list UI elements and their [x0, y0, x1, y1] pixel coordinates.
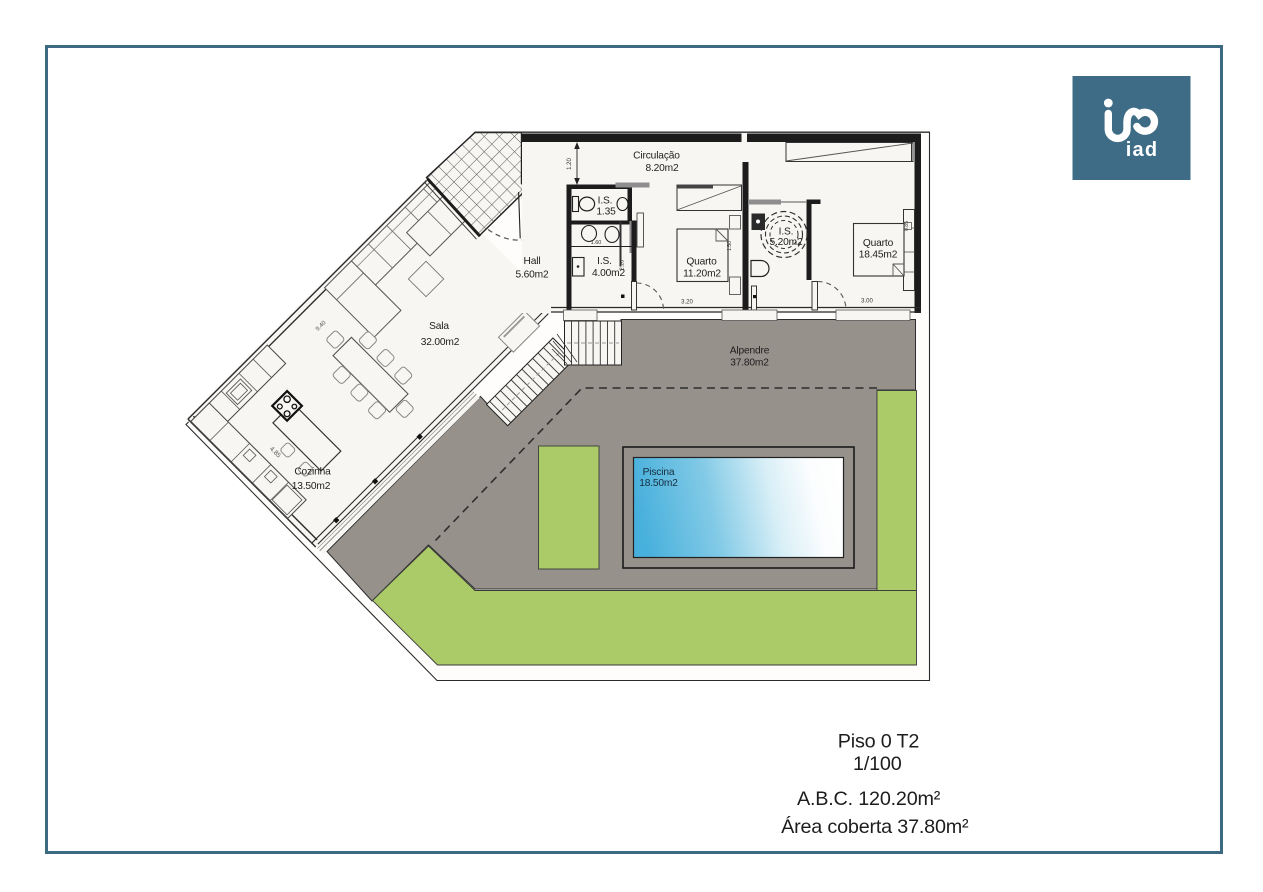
svg-text:Circulação: Circulação [633, 151, 680, 162]
svg-text:Sala: Sala [429, 321, 449, 332]
svg-text:Alpendre: Alpendre [730, 346, 770, 357]
svg-text:5.20m2: 5.20m2 [769, 237, 803, 248]
svg-text:Quarto: Quarto [863, 238, 894, 249]
svg-text:1.50: 1.50 [727, 241, 733, 251]
svg-text:4.00m2: 4.00m2 [592, 268, 626, 279]
svg-text:I.S.: I.S. [597, 256, 612, 267]
svg-text:5.60m2: 5.60m2 [515, 270, 549, 281]
svg-text:13.50m2: 13.50m2 [292, 481, 331, 492]
svg-text:18.50m2: 18.50m2 [639, 478, 678, 489]
svg-text:1/100: 1/100 [853, 753, 902, 775]
svg-text:Piso 0 T2: Piso 0 T2 [838, 730, 919, 752]
svg-text:iad: iad [1126, 139, 1159, 161]
svg-text:0.85: 0.85 [904, 221, 910, 231]
svg-text:37.80m2: 37.80m2 [730, 358, 769, 369]
svg-text:Hall: Hall [524, 256, 541, 267]
svg-text:8.20m2: 8.20m2 [645, 163, 679, 174]
svg-text:18.45m2: 18.45m2 [859, 250, 898, 261]
svg-text:Piscina: Piscina [643, 467, 675, 478]
svg-text:11.20m2: 11.20m2 [683, 269, 721, 280]
svg-text:I.S.: I.S. [598, 196, 613, 207]
svg-text:1.60: 1.60 [591, 240, 602, 246]
svg-text:1.35: 1.35 [596, 207, 616, 218]
svg-text:3.00: 3.00 [861, 299, 873, 305]
svg-text:3.20: 3.20 [681, 300, 693, 306]
svg-text:A.B.C. 120.20m²: A.B.C. 120.20m² [797, 788, 941, 810]
svg-text:I.S.: I.S. [779, 227, 794, 238]
svg-text:Cozinha: Cozinha [294, 467, 331, 478]
svg-text:32.00m2: 32.00m2 [421, 337, 460, 348]
svg-text:1.20: 1.20 [567, 158, 573, 170]
svg-text:Área coberta 37.80m²: Área coberta 37.80m² [781, 815, 969, 838]
svg-text:Quarto: Quarto [686, 257, 717, 268]
